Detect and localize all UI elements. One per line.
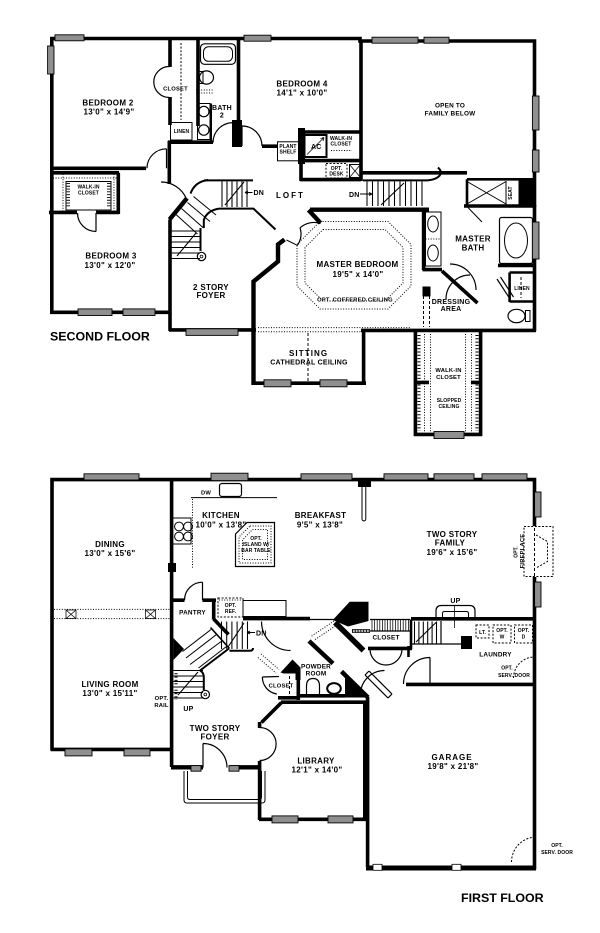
svg-text:LINEN: LINEN xyxy=(514,286,530,292)
svg-text:REF.: REF. xyxy=(225,609,237,615)
svg-text:LIVING ROOM: LIVING ROOM xyxy=(81,680,138,689)
svg-text:LAUNDRY: LAUNDRY xyxy=(479,652,512,659)
svg-text:BEDROOM 4: BEDROOM 4 xyxy=(276,80,327,89)
svg-text:AREA: AREA xyxy=(441,306,462,313)
svg-text:WALK-IN: WALK-IN xyxy=(435,368,461,374)
svg-text:10'0" x 13'8": 10'0" x 13'8" xyxy=(196,521,247,530)
svg-text:UP: UP xyxy=(450,598,460,605)
svg-text:MASTER BEDROOM: MASTER BEDROOM xyxy=(317,260,399,269)
svg-text:DESK: DESK xyxy=(329,172,344,178)
svg-text:CLOSET: CLOSET xyxy=(269,684,294,690)
svg-text:CATHEDRAL CEILING: CATHEDRAL CEILING xyxy=(270,360,348,367)
svg-text:OPT.: OPT. xyxy=(518,628,530,634)
svg-text:LIBRARY: LIBRARY xyxy=(297,757,335,766)
svg-text:2: 2 xyxy=(220,113,224,120)
svg-text:13'0" x 15'6": 13'0" x 15'6" xyxy=(85,549,136,558)
svg-text:POWDER: POWDER xyxy=(301,664,331,671)
svg-text:DW: DW xyxy=(201,491,211,497)
svg-text:BREAKFAST: BREAKFAST xyxy=(295,511,347,520)
svg-text:FIRST FLOOR: FIRST FLOOR xyxy=(461,891,544,905)
svg-text:CLOSET: CLOSET xyxy=(163,87,188,93)
svg-text:MASTER: MASTER xyxy=(455,235,491,244)
svg-text:14'1" x 10'0": 14'1" x 10'0" xyxy=(277,89,328,98)
svg-text:SHELF: SHELF xyxy=(280,150,297,156)
svg-text:W: W xyxy=(500,635,505,641)
svg-text:19'8" x 21'8": 19'8" x 21'8" xyxy=(428,762,479,771)
svg-text:SERV. DOOR: SERV. DOOR xyxy=(541,850,573,856)
svg-text:BAR TABLE: BAR TABLE xyxy=(241,548,271,554)
svg-text:SITTING: SITTING xyxy=(289,349,328,358)
svg-text:OPT. COFFERED CEILING: OPT. COFFERED CEILING xyxy=(317,298,393,304)
svg-text:SERV. DOOR: SERV. DOOR xyxy=(498,673,530,679)
svg-text:CLOSET: CLOSET xyxy=(372,635,399,642)
svg-text:FIREPLACE: FIREPLACE xyxy=(520,534,526,569)
svg-text:FAMILY: FAMILY xyxy=(435,539,466,548)
svg-text:13'0" x 15'11": 13'0" x 15'11" xyxy=(82,689,137,698)
svg-text:DRESSING: DRESSING xyxy=(432,299,471,306)
svg-text:ROOM: ROOM xyxy=(306,671,327,678)
svg-text:D: D xyxy=(522,635,526,641)
svg-text:BEDROOM 3: BEDROOM 3 xyxy=(85,252,136,261)
svg-text:13'0" x 12'0": 13'0" x 12'0" xyxy=(85,261,136,270)
svg-text:GARAGE: GARAGE xyxy=(431,753,472,762)
svg-text:KITCHEN: KITCHEN xyxy=(202,511,240,520)
svg-text:SEAT: SEAT xyxy=(508,186,514,199)
svg-text:OPEN TO: OPEN TO xyxy=(435,103,465,110)
svg-text:13'0" x 14'9": 13'0" x 14'9" xyxy=(84,108,135,117)
svg-text:DN: DN xyxy=(254,190,265,197)
svg-text:OPT.: OPT. xyxy=(496,628,508,634)
svg-text:CLOSET: CLOSET xyxy=(331,142,352,148)
svg-text:DINING: DINING xyxy=(95,540,125,549)
svg-text:LINEN: LINEN xyxy=(174,129,190,135)
svg-text:PANTRY: PANTRY xyxy=(179,610,206,617)
svg-text:FOYER: FOYER xyxy=(200,733,229,742)
svg-text:19'5" x 14'0": 19'5" x 14'0" xyxy=(333,270,384,279)
svg-text:9'5" x 13'8": 9'5" x 13'8" xyxy=(297,521,343,530)
svg-text:LT.: LT. xyxy=(479,630,486,636)
svg-text:SECOND FLOOR: SECOND FLOOR xyxy=(50,330,150,344)
svg-text:DN: DN xyxy=(349,192,360,199)
svg-text:OPT.: OPT. xyxy=(514,546,520,558)
svg-text:LOFT: LOFT xyxy=(276,191,305,200)
svg-text:19'6" x 15'6": 19'6" x 15'6" xyxy=(427,548,478,557)
svg-text:OPT.: OPT. xyxy=(155,696,169,702)
svg-text:12'1" x 14'0": 12'1" x 14'0" xyxy=(292,766,343,775)
svg-text:CLOSET: CLOSET xyxy=(78,191,99,197)
svg-text:OPT.: OPT. xyxy=(551,843,563,849)
svg-text:CLOSET: CLOSET xyxy=(436,375,461,381)
svg-text:BEDROOM 2: BEDROOM 2 xyxy=(82,99,133,108)
svg-text:OPT.: OPT. xyxy=(501,666,513,672)
svg-text:RAIL: RAIL xyxy=(154,703,169,709)
svg-text:BATH: BATH xyxy=(462,244,485,253)
svg-text:FAMILY BELOW: FAMILY BELOW xyxy=(425,111,476,118)
svg-text:CEILING: CEILING xyxy=(439,404,460,410)
svg-text:BATH: BATH xyxy=(212,105,232,112)
svg-text:UP: UP xyxy=(183,706,193,713)
svg-text:FOYER: FOYER xyxy=(196,291,225,300)
